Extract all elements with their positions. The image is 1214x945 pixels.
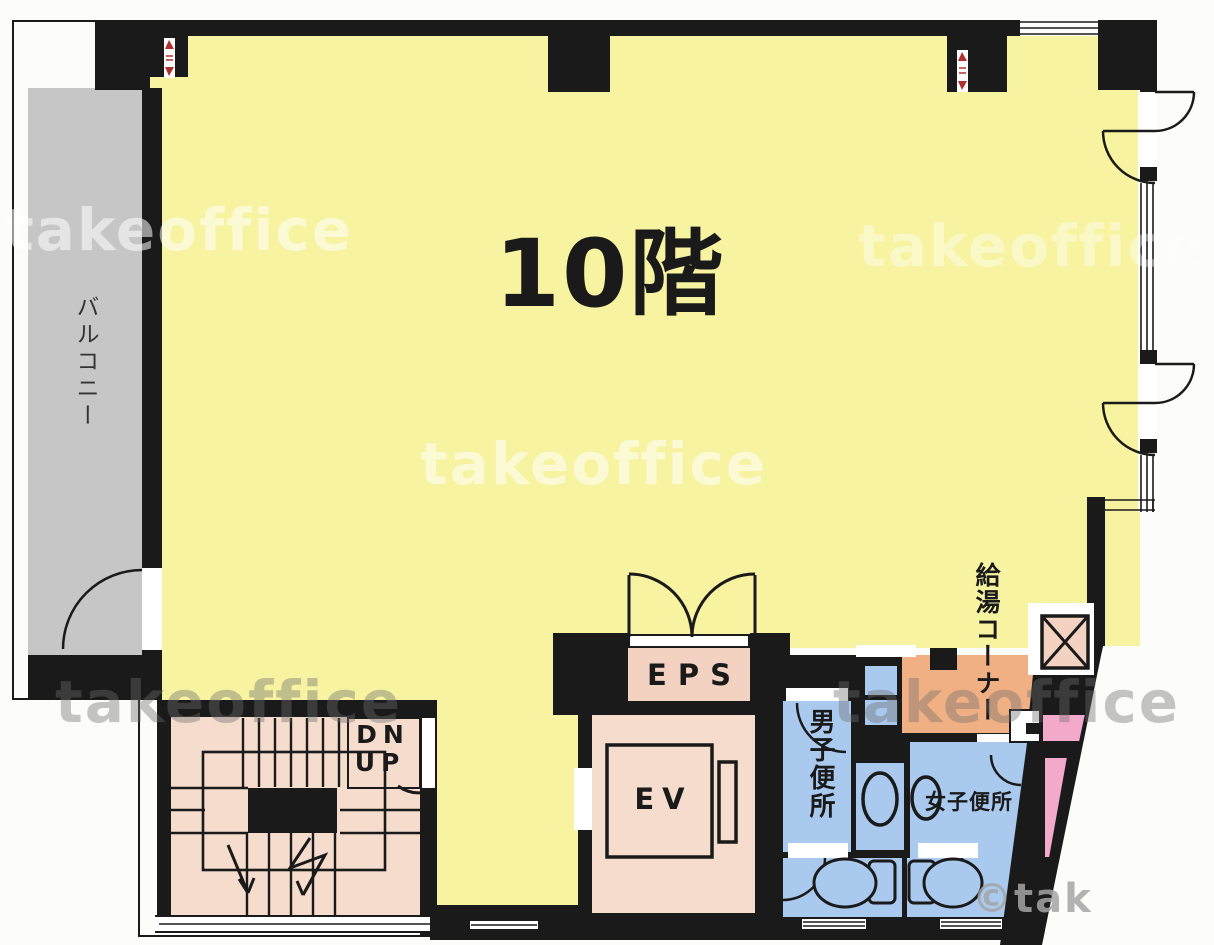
eps-double-door (629, 574, 755, 637)
urinal-icon (863, 773, 897, 825)
elevator-counterweight (719, 762, 736, 842)
pink-wedge-upper (1042, 714, 1086, 742)
kitchenette-faucet (1026, 723, 1039, 734)
mens-toilet-label: 男子便所 (802, 708, 839, 853)
floor-plan: 10階 バルコニー DN UP EPS EV 男子便所 女子便所 給湯コーナー … (0, 0, 1214, 945)
floor-label: 10階 (460, 198, 760, 334)
womens-toilet-label: 女子便所 (925, 786, 1013, 816)
window-mullion-lines (159, 922, 1001, 926)
right-door-upper (1103, 92, 1194, 183)
balcony-door-arc (63, 570, 142, 649)
elevator-label: EV (607, 782, 712, 816)
balcony-label: バルコニー (68, 295, 102, 465)
window-glazing-top-right (1020, 22, 1100, 34)
kitchenette-label: 給湯コーナー (968, 562, 1004, 732)
tick-mark-left (164, 38, 175, 78)
tick-mark-right (957, 50, 968, 92)
right-door-lower (1103, 364, 1194, 455)
stair-landing-block (248, 788, 337, 833)
stairs-up-label: UP (347, 748, 413, 777)
eps-label: EPS (628, 658, 750, 692)
window-glazing-right (1141, 183, 1153, 512)
toilet-1-bowl (814, 859, 876, 907)
toilet-2-bowl (924, 859, 982, 907)
stairs-dn-label: DN (350, 720, 416, 749)
womens-toilet-door-arc (991, 755, 1021, 785)
